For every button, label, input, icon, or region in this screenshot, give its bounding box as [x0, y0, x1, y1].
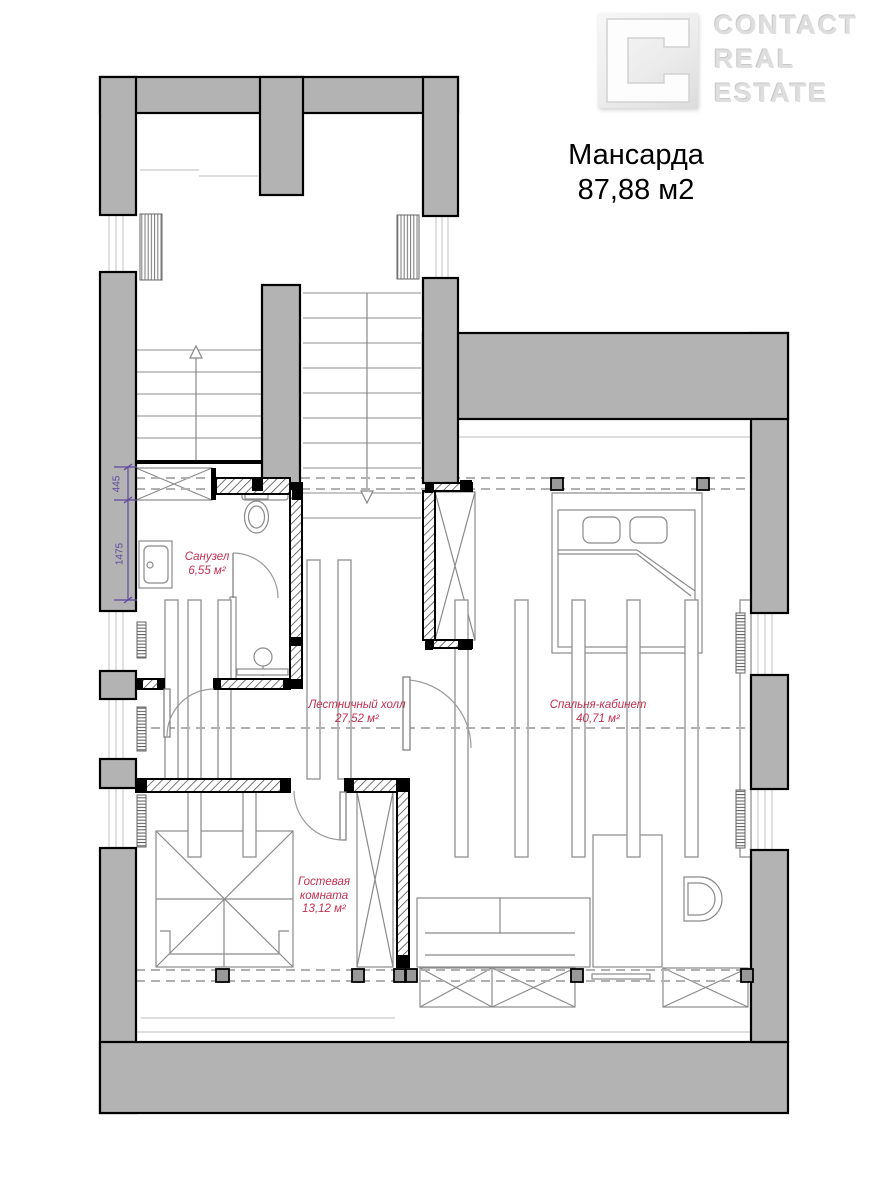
room-label-guest-room: Гостевая комната 13,12 м²: [298, 876, 350, 917]
floorplan-page: CONTACT REAL ESTATE Мансарда 87,88 м2 Са…: [0, 0, 877, 1200]
shower-area: [230, 597, 288, 688]
wall-hung-wc: [684, 877, 722, 921]
dimension-1475: 1475: [115, 543, 126, 565]
room-name: Гостевая: [298, 876, 350, 890]
dimension-445: 445: [112, 476, 123, 493]
logo-c-glyph: [598, 13, 698, 108]
floorplan-drawing: [0, 0, 877, 1200]
room-name: Лестничный холл: [308, 699, 405, 713]
title-floor-name: Мансарда: [568, 138, 704, 173]
logo-word-3: ESTATE: [714, 76, 858, 110]
contact-square-logo: [598, 13, 698, 108]
room-name: комната: [298, 890, 350, 904]
room-label-stair-hall: Лестничный холл 27,52 м²: [308, 699, 405, 726]
room-area: 27,52 м²: [308, 713, 405, 727]
guest-wardrobe: [357, 792, 393, 967]
room-name: Спальня-кабинет: [550, 699, 647, 713]
logo-wordmark: CONTACT REAL ESTATE: [714, 8, 858, 110]
room-label-bedroom-office: Спальня-кабинет 40,71 м²: [550, 699, 647, 726]
stair-flight-left: [136, 350, 262, 438]
guest-room-door: [294, 791, 346, 840]
guest-bed: [156, 831, 293, 967]
logo-word-1: CONTACT: [714, 8, 858, 42]
room-area: 40,71 м²: [550, 713, 647, 727]
room-area: 6,55 м²: [185, 565, 230, 579]
eaves-cabinets: [420, 968, 748, 1007]
page-title: Мансарда 87,88 м2: [568, 138, 704, 208]
bathroom-closet: [136, 468, 212, 500]
room-area: 13,12 м²: [298, 903, 350, 917]
room-name: Санузел: [185, 551, 230, 565]
sofa: [417, 898, 590, 967]
logo-word-2: REAL: [714, 42, 858, 76]
wash-sink: [139, 541, 172, 588]
room-label-bathroom: Санузел 6,55 м²: [185, 551, 230, 578]
stair-flight-right: [303, 293, 421, 518]
title-total-area: 87,88 м2: [568, 173, 704, 208]
shower-door: [233, 553, 278, 598]
toilet: [245, 490, 269, 533]
